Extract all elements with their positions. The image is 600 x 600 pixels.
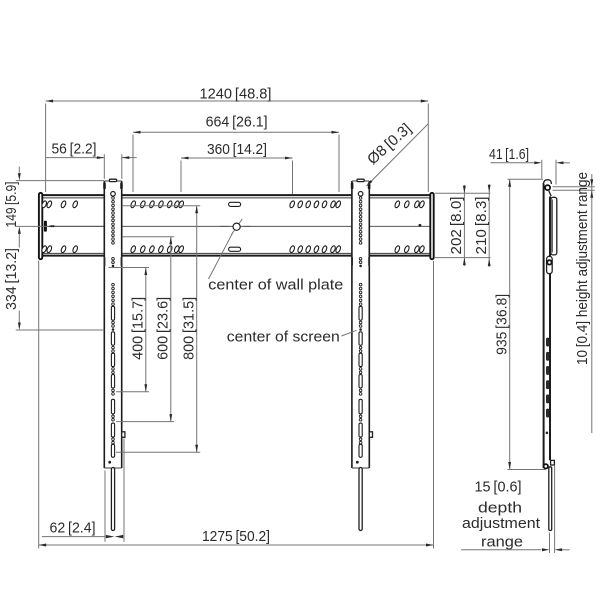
- svg-text:800 [31.5]: 800 [31.5]: [180, 297, 197, 360]
- svg-text:935 [36.8]: 935 [36.8]: [494, 294, 511, 355]
- svg-text:center of screen: center of screen: [227, 329, 340, 346]
- svg-text:56 [2.2]: 56 [2.2]: [52, 140, 97, 157]
- svg-text:600 [23.6]: 600 [23.6]: [154, 297, 171, 360]
- svg-text:210 [8.3]: 210 [8.3]: [473, 197, 490, 255]
- svg-text:334 [13.2]: 334 [13.2]: [3, 248, 20, 310]
- svg-text:664 [26.1]: 664 [26.1]: [206, 113, 268, 130]
- svg-text:depth: depth: [478, 500, 522, 517]
- svg-text:15 [0.6]: 15 [0.6]: [475, 479, 522, 496]
- svg-text:400 [15.7]: 400 [15.7]: [129, 297, 146, 360]
- svg-text:41 [1.6]: 41 [1.6]: [489, 146, 529, 163]
- svg-text:149 [5.9]: 149 [5.9]: [3, 182, 20, 228]
- svg-text:adjustment: adjustment: [462, 515, 541, 532]
- svg-text:10 [0.4] height adjustment ran: 10 [0.4] height adjustment range: [574, 172, 591, 365]
- svg-text:1240 [48.8]: 1240 [48.8]: [200, 85, 272, 102]
- svg-text:center of wall plate: center of wall plate: [208, 277, 343, 294]
- svg-text:62 [2.4]: 62 [2.4]: [50, 520, 96, 537]
- svg-text:202 [8.0]: 202 [8.0]: [448, 197, 465, 255]
- svg-text:range: range: [481, 534, 523, 551]
- svg-text:1275 [50.2]: 1275 [50.2]: [202, 528, 270, 545]
- svg-text:360 [14.2]: 360 [14.2]: [207, 141, 267, 158]
